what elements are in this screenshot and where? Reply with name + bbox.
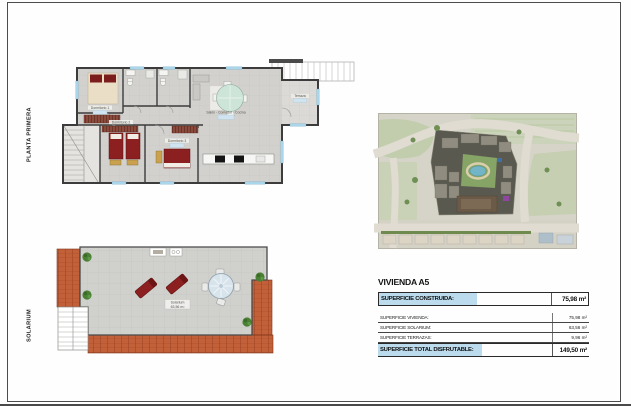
label-dormitorio1: Dormitorio 1 [91,106,110,110]
dwelling-title: VIVIENDA A5 [378,277,589,287]
surface-info-panel: VIVIENDA A5 SUPERFICIE CONSTRUIDA: 75,98… [378,277,589,357]
roof-bottom [88,335,273,353]
floor-level-label: PLANTA PRIMERA [27,93,36,177]
label-dormitorio3: Dormitorio 3 [168,139,187,143]
total-surface-label: SUPERFICIE TOTAL DISFRUTABLE: [378,344,482,356]
solarium-plan: Solarium 63,56 m² [55,240,275,365]
svg-text:63,56 m²: 63,56 m² [171,305,186,309]
sink [256,156,265,162]
residential-block [431,130,517,215]
surface-row-terrazas: SUPERFICIE TERRAZAS: 9,96 m² [378,333,589,343]
label-salon: Salón - Comedor - Cocina [206,111,245,115]
total-surface-value: 149,50 m² [552,344,589,356]
plant-icon [242,317,251,326]
solarium-staircase [58,307,88,350]
solarium-level-label: SOLARIUM [27,284,36,368]
built-surface-row: SUPERFICIE CONSTRUIDA: 75,98 m² [378,292,589,306]
label-terraza: Terraza [294,94,305,98]
total-surface-row: SUPERFICIE TOTAL DISFRUTABLE: 149,50 m² [378,343,589,357]
solarium-label: Solarium 63,56 m² [165,300,190,310]
kitchen-counter [203,154,274,164]
built-surface-label: SUPERFICIE CONSTRUIDA: [379,293,477,305]
hob [234,156,244,163]
plant-icon [255,272,264,281]
roof-right [252,280,272,335]
sofa [193,75,209,82]
plant-icon [82,290,91,299]
surface-row-vivienda: SUPERFICIE VIVIENDA: 75,98 m² [378,313,589,323]
grill-icon [153,250,163,254]
spacer [477,293,551,305]
surface-row-solarium: SUPERFICIE SOLARIUM: 63,56 m² [378,323,589,333]
utility-boxes [150,248,182,256]
site-aerial-map [378,113,577,249]
label-dormitorio2: Dormitorio 2 [112,120,131,124]
first-floor-plan: Dormitorio 1 Dormitorio 2 Dormitorio 3 S… [60,56,360,188]
plan-sheet: PLANTA PRIMERA SOLARIUM [0,0,631,406]
built-surface-value: 75,98 m² [551,293,588,305]
spacer [482,344,552,356]
plant-icon [82,252,91,261]
oven [215,156,225,163]
bed-dormitorio1 [84,73,120,123]
roof-left [57,249,80,307]
pool [470,166,486,176]
